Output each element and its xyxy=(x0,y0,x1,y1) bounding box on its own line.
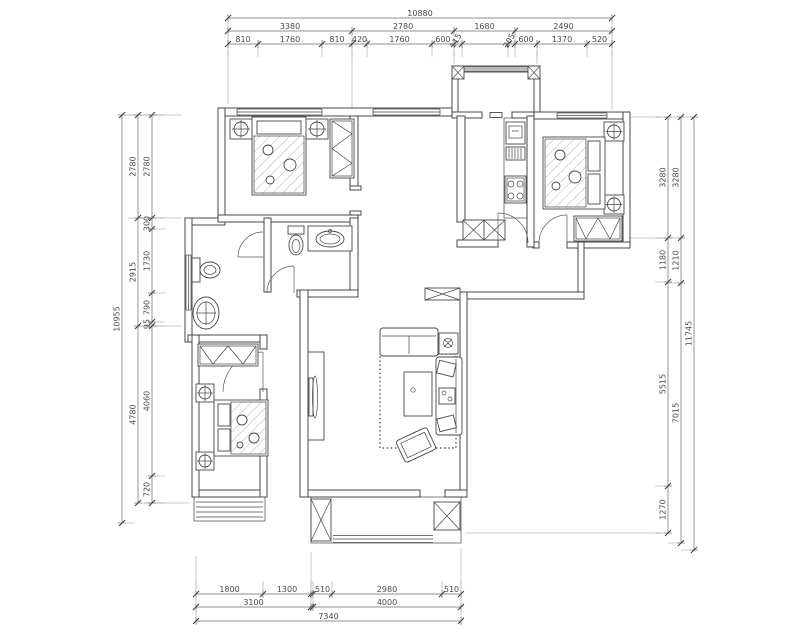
dimension-label: 520 xyxy=(592,35,607,44)
bedroom-bottom-left-furniture xyxy=(196,344,268,470)
dimension-label: 1180 xyxy=(659,250,668,270)
bedroom-top-left-furniture xyxy=(230,117,354,195)
pillow xyxy=(588,174,600,204)
wall-segment xyxy=(457,240,498,247)
wardrobe xyxy=(198,344,258,366)
stove xyxy=(505,176,526,203)
wall-segment xyxy=(350,186,361,190)
wall-segment xyxy=(350,211,361,215)
bathroom-middle-fixtures xyxy=(288,226,352,255)
dimension-chain-bottom: 180013005102980510310040007340 xyxy=(193,581,464,625)
dimension-label: 420 xyxy=(352,35,367,44)
bathroom-left-fixtures xyxy=(192,258,220,329)
dimension-label: 3380 xyxy=(280,22,300,31)
dimension-label: 11745 xyxy=(685,321,694,346)
pillow xyxy=(588,141,600,171)
dimension-label: 3280 xyxy=(672,167,681,187)
pillow xyxy=(218,404,230,426)
dimension-label: 4780 xyxy=(129,404,138,424)
dimension-label: 2780 xyxy=(393,22,413,31)
wall-segment xyxy=(460,292,584,299)
armchair xyxy=(396,427,437,463)
dimension-chain-left: 1095527802915478027803001730790954060720 xyxy=(113,112,166,526)
toilet xyxy=(288,226,304,234)
dimension-label: 2490 xyxy=(553,22,573,31)
dimension-label: 600 xyxy=(518,35,533,44)
dimension-label: 10880 xyxy=(407,9,432,18)
dimension-label: 510 xyxy=(444,585,459,594)
dimension-label: 1210 xyxy=(672,250,681,270)
dimension-label: 4000 xyxy=(377,598,397,607)
pillow xyxy=(257,121,301,134)
door-swing-arc xyxy=(238,232,263,257)
pillow xyxy=(218,429,230,451)
dimension-label: 790 xyxy=(143,300,152,315)
kitchen-fixtures xyxy=(504,118,527,218)
wall-segment xyxy=(218,108,225,222)
dimension-label: 600 xyxy=(435,35,450,44)
dimension-label: 3280 xyxy=(659,167,668,187)
wall-segment xyxy=(457,116,465,222)
dimension-label: 95 xyxy=(143,319,152,329)
dimension-label: 1760 xyxy=(280,35,300,44)
dimension-label: 3100 xyxy=(243,598,263,607)
dimension-label: 5515 xyxy=(659,374,668,394)
door-swing-arc xyxy=(539,215,567,243)
dimension-label: 2915 xyxy=(129,262,138,282)
living-room-furniture xyxy=(308,328,462,463)
wall-segment xyxy=(260,335,267,349)
dimension-label: 1300 xyxy=(277,585,297,594)
dimension-label: 720 xyxy=(143,482,152,497)
dimension-label: 1680 xyxy=(474,22,494,31)
wall-segment xyxy=(567,242,630,248)
dimension-label: 10955 xyxy=(113,306,122,331)
dimension-label: 4060 xyxy=(143,391,152,411)
dimension-label: 1800 xyxy=(219,585,239,594)
dimension-label: 2980 xyxy=(377,585,397,594)
dimension-label: 510 xyxy=(315,585,330,594)
dimension-chain-right: 328011805515127032801210701511745 xyxy=(655,114,698,553)
wall-segment xyxy=(578,242,584,298)
dimension-label: 1370 xyxy=(552,35,572,44)
wall-segment xyxy=(300,290,308,497)
dimension-label: 810 xyxy=(235,35,250,44)
dimension-label: 1270 xyxy=(659,499,668,519)
wall-segment xyxy=(218,215,358,222)
door-swings xyxy=(223,213,567,392)
dimension-chain-top: 1088033802780168024908101760810420176060… xyxy=(225,9,615,57)
floor-plan-canvas[interactable]: 1088033802780168024908101760810420176060… xyxy=(0,0,800,640)
dimension-label: 1730 xyxy=(143,251,152,271)
dimension-label: 2780 xyxy=(129,156,138,176)
dimension-label: 7015 xyxy=(672,403,681,423)
wall-segment xyxy=(445,490,467,497)
dimension-label: 300 xyxy=(143,216,152,231)
bedroom-top-right-furniture xyxy=(543,122,624,241)
dimension-label: 1760 xyxy=(389,35,409,44)
wall-segment xyxy=(527,116,534,247)
coffee-table xyxy=(404,372,432,416)
toilet xyxy=(192,258,200,282)
dimension-label: 2780 xyxy=(143,156,152,176)
floor-plan-page: 1088033802780168024908101760810420176060… xyxy=(0,0,800,640)
wall-segment xyxy=(303,490,420,497)
wall-segment xyxy=(193,490,267,497)
wardrobe xyxy=(330,119,354,178)
wall-segment xyxy=(188,335,267,342)
dimension-label: 7340 xyxy=(318,612,338,621)
dimension-label: 810 xyxy=(329,35,344,44)
